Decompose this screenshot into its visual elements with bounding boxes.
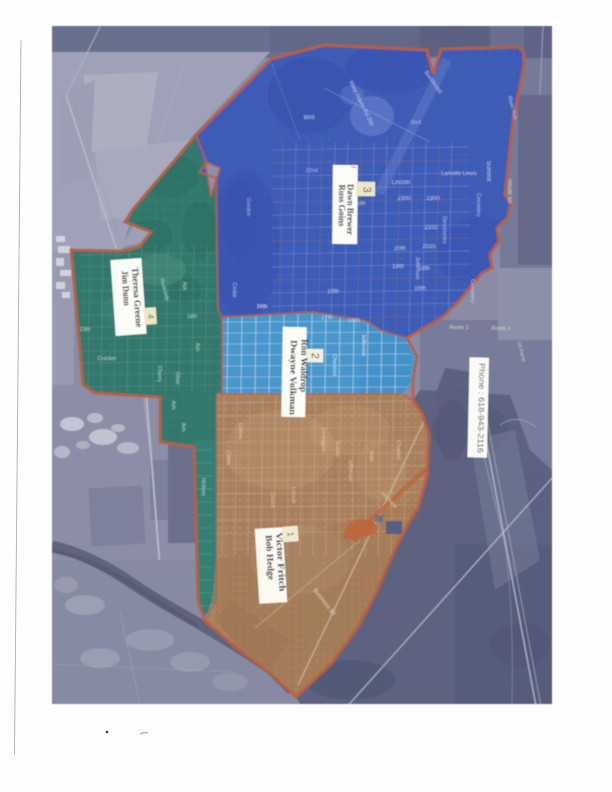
svg-text:2300: 2300 [426, 196, 440, 202]
svg-text:Slate: Slate [368, 450, 374, 462]
svg-text:Route 50: Route 50 [506, 179, 512, 204]
svg-text:Ash: Ash [181, 282, 187, 291]
svg-text:Jefferson: Jefferson [360, 334, 366, 357]
svg-text:Route 1: Route 1 [491, 326, 510, 332]
svg-text:Bird: Bird [411, 120, 421, 126]
svg-text:Cemetery: Cemetery [475, 193, 481, 217]
svg-text:Ron Waldrop: Ron Waldrop [298, 339, 309, 392]
svg-text:Russ Goins: Russ Goins [336, 184, 346, 226]
svg-text:2: 2 [309, 353, 321, 359]
svg-text:Cedar: Cedar [225, 451, 231, 466]
svg-text:Cherry: Cherry [156, 366, 162, 383]
svg-text:Bird: Bird [304, 115, 315, 121]
svg-text:Jefferson: Jefferson [347, 459, 353, 482]
svg-text:16th: 16th [257, 304, 268, 310]
svg-text:Olive: Olive [174, 372, 180, 385]
svg-text:Gordon: Gordon [245, 198, 251, 216]
svg-text:16th: 16th [414, 286, 426, 292]
svg-text:Jefferson: Jefferson [414, 257, 420, 280]
svg-text:13th: 13th [80, 327, 91, 333]
svg-text:Cedar: Cedar [231, 283, 237, 298]
svg-text:Dubois: Dubois [334, 441, 340, 457]
svg-text:Ash: Ash [180, 423, 186, 432]
svg-text:Ash: Ash [194, 343, 200, 352]
svg-text:1: 1 [286, 531, 296, 537]
svg-text:2025: 2025 [422, 244, 436, 250]
svg-text:Lexington: Lexington [320, 428, 326, 452]
svg-text:Locust: Locust [290, 487, 296, 504]
svg-text:2300: 2300 [397, 196, 411, 202]
svg-text:Lamotte Lewis: Lamotte Lewis [441, 171, 477, 177]
svg-text:Summit: Summit [485, 161, 491, 182]
svg-text:16th: 16th [348, 318, 360, 324]
svg-text:17th: 17th [321, 315, 333, 321]
svg-text:4: 4 [146, 314, 156, 320]
svg-text:Devonshire: Devonshire [441, 216, 447, 244]
svg-text:Church: Church [269, 492, 275, 508]
svg-text:Chestnut: Chestnut [331, 354, 337, 376]
svg-text:Ash: Ash [170, 401, 176, 410]
svg-text:Cracker: Cracker [97, 356, 116, 362]
svg-text:Cemetery: Cemetery [469, 279, 475, 303]
svg-text:Phone : 618-943-2116: Phone : 618-943-2116 [476, 363, 488, 454]
svg-text:22nd: 22nd [306, 168, 318, 174]
svg-text:19th: 19th [327, 289, 339, 295]
svg-text:3: 3 [361, 187, 373, 193]
svg-text:2102: 2102 [424, 225, 438, 231]
svg-text:Route 1: Route 1 [449, 325, 468, 331]
svg-text:Lincoln: Lincoln [391, 180, 410, 186]
svg-text:20th: 20th [394, 246, 406, 252]
svg-text:Hickory: Hickory [200, 478, 206, 497]
svg-text:Collins: Collins [237, 423, 243, 440]
svg-text:14th: 14th [187, 314, 197, 320]
svg-text:18th: 18th [392, 264, 404, 270]
svg-text:Dwayne Volkman: Dwayne Volkman [287, 340, 298, 416]
svg-text:Charles: Charles [395, 441, 401, 460]
